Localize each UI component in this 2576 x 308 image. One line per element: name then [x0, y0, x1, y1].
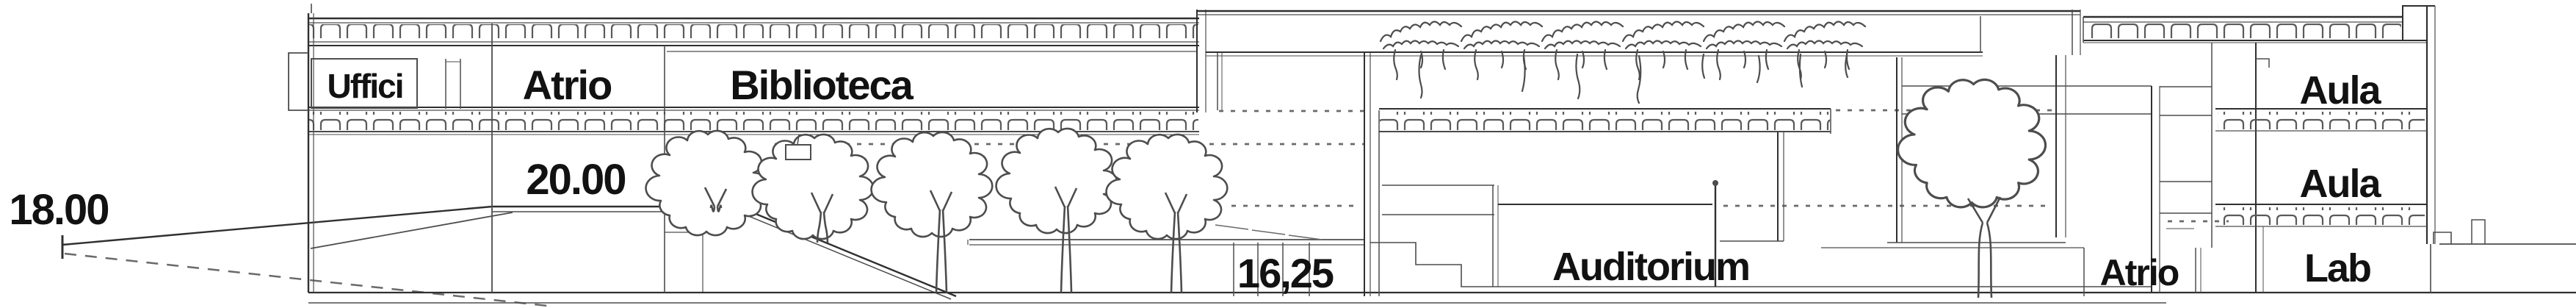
stair-core: [2160, 43, 2212, 248]
tree-canopy: [872, 132, 993, 237]
right-roof-joists: [2086, 24, 2401, 39]
railing-post-cap: [1712, 180, 1718, 186]
annex: [2434, 220, 2576, 244]
column-footing: [665, 232, 703, 292]
facade-balcony-bracket: [289, 53, 308, 110]
elevation-site-left: 18.00: [9, 186, 108, 234]
room-label-uffici: Uffici: [328, 67, 403, 105]
stage-steps: [1370, 243, 2152, 287]
hall-ceiling-joists: [1380, 112, 1830, 130]
elevation-auditorium: 16,25: [1237, 250, 1334, 296]
parapet: [2403, 6, 2435, 40]
excavation-dashed-line: [65, 254, 554, 307]
trees-left: [646, 129, 1228, 293]
room-label-lab: Lab: [2304, 246, 2370, 290]
section-drawing: 18.00 Uffici Atrio Biblioteca 20.00 16,2…: [0, 0, 2576, 308]
slab2-joists: [2218, 207, 2425, 225]
hanging-tendrils: [1419, 54, 1848, 103]
corridor-wall-bracket: [2256, 59, 2269, 68]
floor-joists: [309, 112, 1198, 130]
room-label-atrio-left: Atrio: [523, 62, 612, 108]
section-drawing-page: 18.00 Uffici Atrio Biblioteca 20.00 16,2…: [0, 0, 2576, 308]
room-label-auditorium: Auditorium: [1552, 245, 1749, 289]
annex-parapet: [2434, 232, 2451, 244]
tree-canopy: [996, 129, 1118, 233]
ground-slope-line: [62, 207, 492, 245]
room-label-biblioteca: Biblioteca: [730, 62, 913, 108]
tree-court: [1898, 79, 2046, 298]
tree-canopy-large: [1898, 79, 2046, 207]
annex-block: [2472, 220, 2485, 244]
ramp-up-line: [311, 212, 513, 248]
tree-canopy: [753, 135, 874, 239]
room-label-atrio-right: Atrio: [2100, 252, 2179, 293]
room-label-aula-upper: Aula: [2299, 68, 2381, 112]
roof-vegetation: [1381, 22, 1865, 104]
roof-joists: [309, 24, 1198, 42]
slab1-joists: [2218, 112, 2425, 129]
slope-hatch: [1215, 225, 1322, 240]
elevation-plaza: 20.00: [526, 156, 625, 204]
tree-canopy: [1107, 135, 1228, 239]
room-label-aula-lower: Aula: [2299, 162, 2381, 206]
